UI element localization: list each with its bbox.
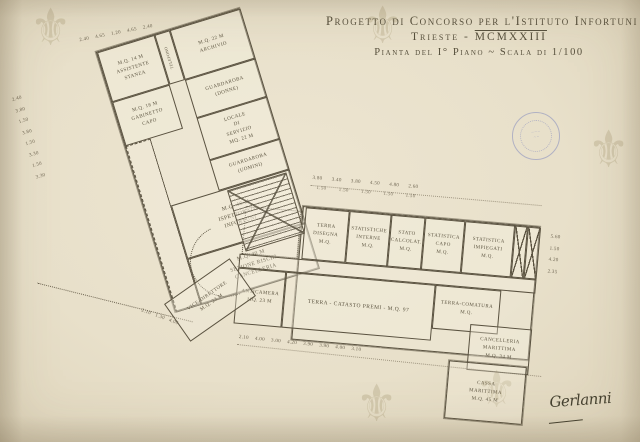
title-line-3: Pianta del I° Piano ~ Scala di 1/100 [326, 47, 632, 58]
room-statistica-capo: STATISTICACAPOM.Q. [421, 218, 465, 273]
room-stato-calcolat: STATOCALCOLAT.M.Q. [387, 215, 425, 270]
fleur-de-lis-watermark-icon: ⚜ [588, 119, 629, 179]
room-terra-disegna: TERRADISEGNAM.Q. [301, 207, 349, 263]
title-line-1: Progetto di Concorso per l'Istituto Info… [326, 14, 632, 29]
fleur-de-lis-watermark-icon: ⚜ [356, 373, 397, 433]
dim-chain-right-edge: 5.601.504.202.35 [547, 232, 561, 279]
title-year: MCMXXIII [475, 31, 547, 43]
fleur-de-lis-watermark-icon: ⚜ [30, 0, 71, 57]
room-statistiche-interne: STATISTICHEINTERNEM.Q. [345, 211, 391, 266]
room-terra-catasto-premi: TERRA - CATASTO PREMI - M.Q. 97 [281, 272, 435, 341]
architect-signature: Gerlanni [549, 387, 640, 429]
dim-chain-wing-left: 2.403.801.503.801.503.301.503.30 [11, 93, 47, 184]
round-ink-stamp: ~ ~ ~~ ~ [512, 112, 560, 160]
drawing-sheet: ⚜ ⚜ ⚜ ⚜ ⚜ Progetto di Concorso per l'Ist… [0, 0, 640, 442]
title-block: Progetto di Concorso per l'Istituto Info… [326, 14, 632, 58]
title-line-2: Trieste - MCMXXIII [326, 31, 632, 43]
room-statistica-impiegati: STATISTICAIMPIEGATIM.Q. [461, 221, 515, 277]
right-wing: TERRADISEGNAM.Q. STATISTICHEINTERNEM.Q. … [291, 206, 540, 360]
